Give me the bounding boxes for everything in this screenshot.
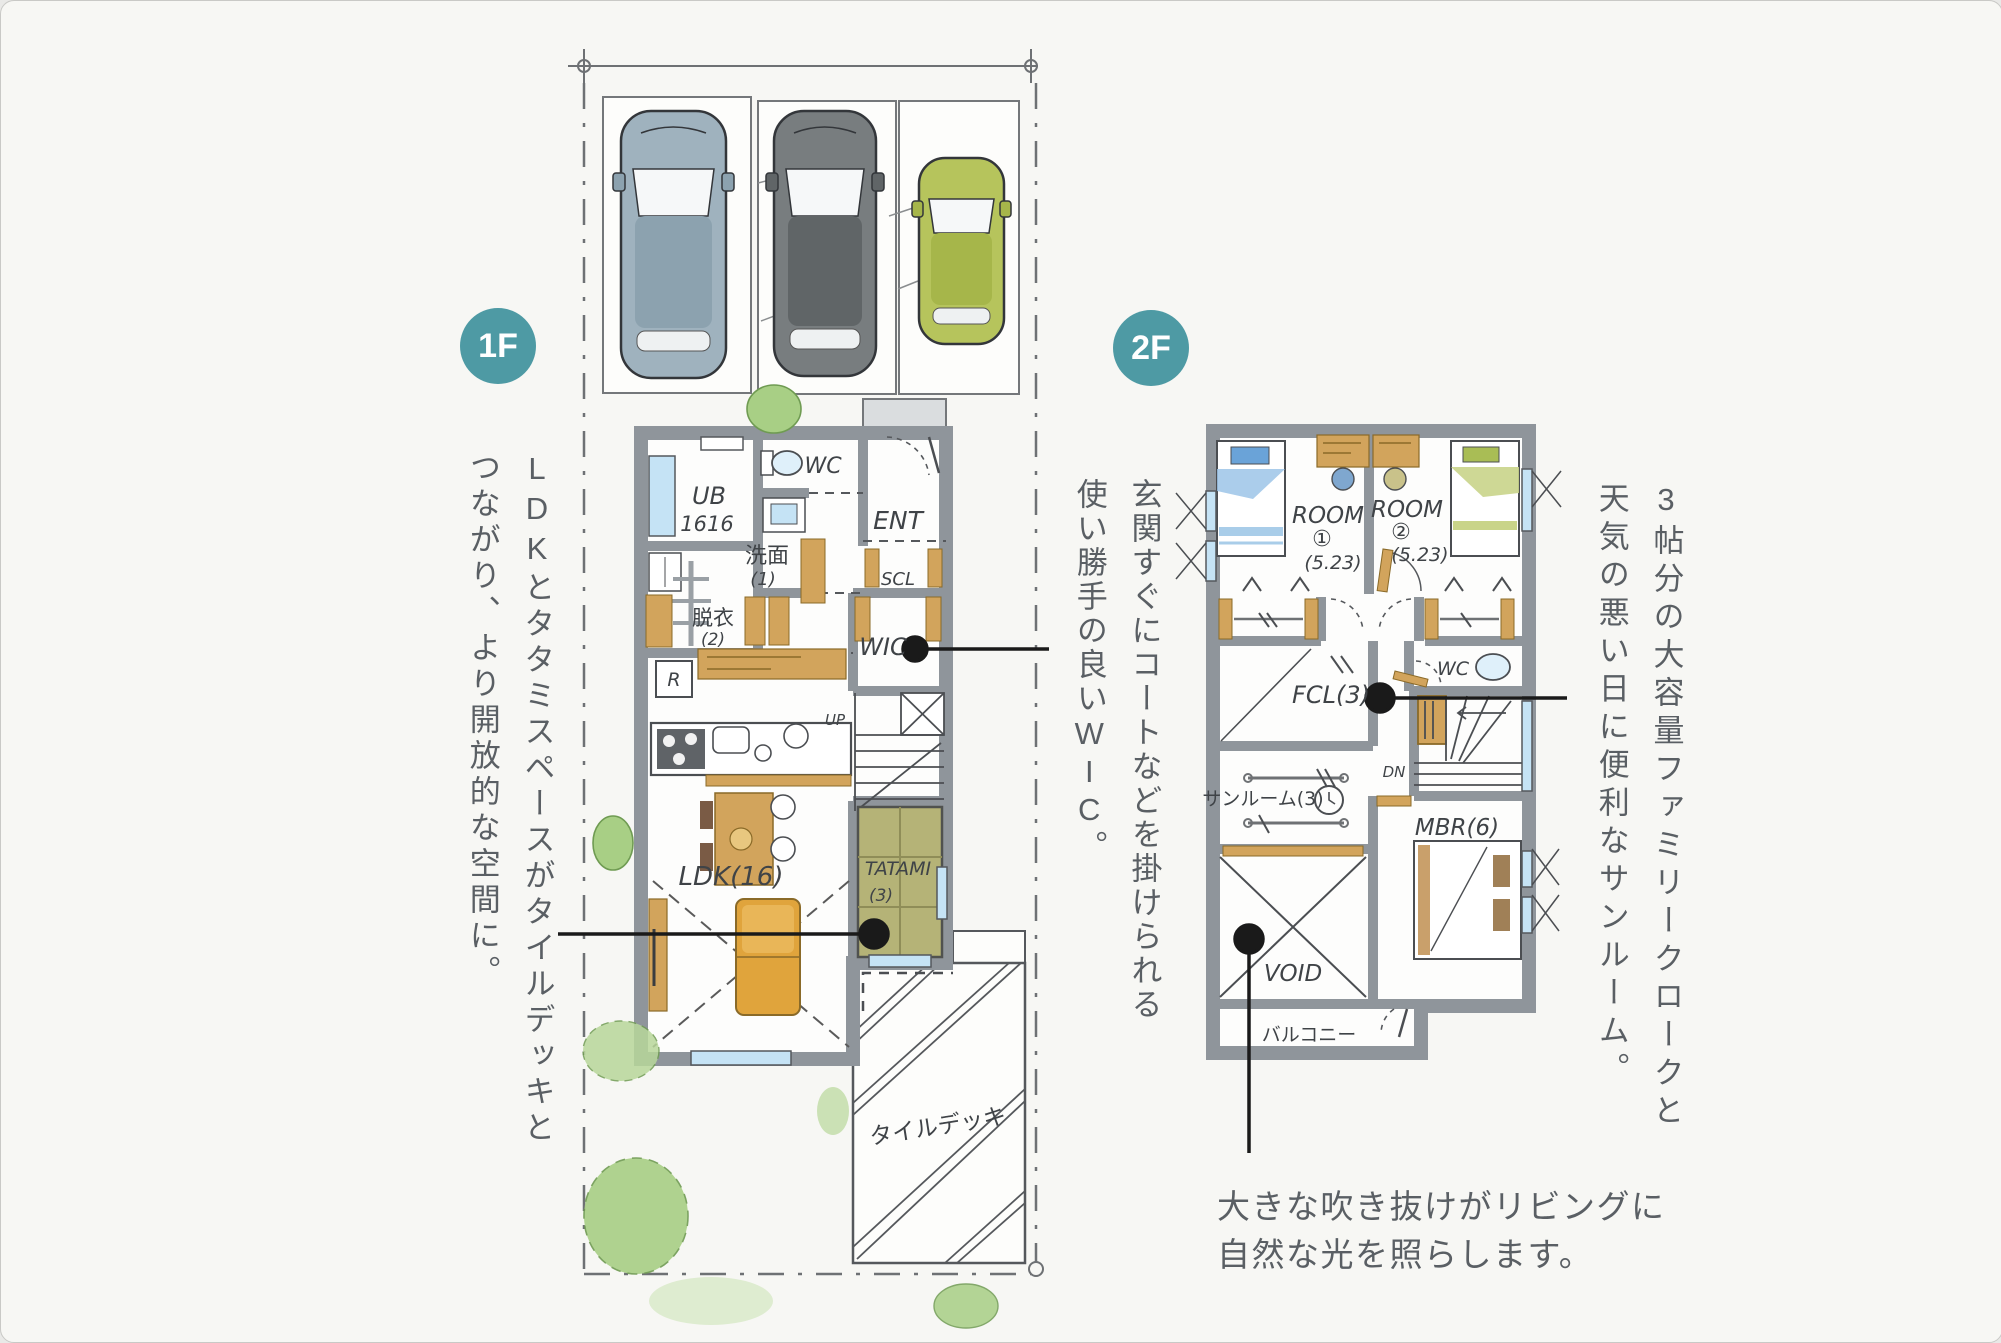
label-up: UP (825, 711, 846, 729)
label-room2-num: ② (1391, 520, 1411, 545)
annotation-middle-line1: 玄関すぐにコートなどを掛けられる (1124, 478, 1163, 1022)
label-fridge: R (667, 669, 680, 691)
label-room2-size: (5.23) (1391, 544, 1448, 566)
label-dn: DN (1383, 763, 1406, 781)
floor-plan-sheet: タイルデッキ (0, 0, 2001, 1343)
label-wic: WIC (859, 633, 907, 661)
label-wc-2f: WC (1437, 658, 1470, 680)
annotation-left: LDKとタタミスペースがタイルデッキと つながり、より開放的な空間に。 (462, 451, 556, 1147)
floor-plan-1f (641, 399, 947, 1065)
annotation-right-line1: 3帖分の大容量ファミリークロークと (1646, 482, 1685, 1132)
label-ldk: LDK(16) (679, 862, 784, 892)
washstand-icon (763, 498, 805, 532)
floor-badge-1f: 1F (460, 308, 536, 384)
annotation-left-line2: つながり、より開放的な空間に。 (462, 451, 501, 1147)
label-ub-size: 1616 (680, 512, 733, 536)
annotation-bottom-line1: 大きな吹き抜けがリビングに (1217, 1183, 1666, 1231)
label-room1-num: ① (1312, 527, 1332, 552)
annotation-right: 3帖分の大容量ファミリークロークと 天気の悪い日に便利なサンルーム。 (1591, 482, 1685, 1132)
callout-dot-tatami (860, 920, 888, 948)
tile-deck: タイルデッキ (853, 931, 1025, 1263)
annotation-bottom-line2: 自然な光を照らします。 (1217, 1231, 1666, 1279)
car-green (912, 158, 1011, 344)
plan-drawing: タイルデッキ (1, 1, 2001, 1342)
sofa (736, 899, 800, 1015)
label-tatami: TATAMI (865, 858, 932, 880)
car-gray (613, 111, 734, 378)
bed-room1 (1217, 441, 1285, 556)
label-senmen: 洗面 (745, 544, 789, 569)
label-tatami-num: (3) (869, 886, 893, 906)
sink-icon (713, 727, 749, 753)
label-senmen-num: (1) (750, 569, 776, 590)
annotation-middle: 玄関すぐにコートなどを掛けられる 使い勝手の良いWIC。 (1069, 478, 1163, 1022)
annotation-left-line1: LDKとタタミスペースがタイルデッキと (517, 451, 556, 1147)
label-void: VOID (1264, 961, 1322, 987)
label-wc-1f: WC (804, 454, 842, 479)
floor-plan-2f (1176, 431, 1561, 1053)
bed-mbr (1414, 841, 1521, 959)
label-mbr: MBR(6) (1415, 815, 1499, 841)
label-ub: UB (692, 482, 726, 510)
label-sunroom: サンルーム(3) (1202, 788, 1323, 810)
floor-badge-2f: 2F (1113, 310, 1189, 386)
label-datsui-num: (2) (701, 630, 725, 650)
bath-counter (701, 437, 743, 450)
annotation-middle-line2: 使い勝手の良いWIC。 (1069, 478, 1108, 1022)
label-datsui: 脱衣 (692, 606, 734, 630)
label-fcl: FCL(3) (1292, 681, 1370, 709)
toilet-icon-1f (761, 451, 802, 475)
label-room1: ROOM (1292, 503, 1364, 529)
label-balcony: バルコニー (1262, 1024, 1357, 1046)
car-black (766, 111, 884, 376)
counter-edge (706, 775, 851, 786)
annotation-bottom: 大きな吹き抜けがリビングに 自然な光を照らします。 (1217, 1183, 1666, 1279)
callout-dot-void (1235, 925, 1263, 953)
cupboard (698, 649, 846, 679)
tv-board (649, 899, 667, 1011)
label-scl: SCL (881, 569, 915, 590)
label-ent: ENT (873, 506, 924, 535)
annotation-right-line2: 天気の悪い日に便利なサンルーム。 (1591, 482, 1630, 1132)
bed-room2 (1451, 441, 1519, 556)
bath-window (649, 456, 675, 536)
label-room1-size: (5.23) (1304, 552, 1361, 574)
callout-dot-fcl (1366, 684, 1394, 712)
toilet-icon-2f (1476, 654, 1510, 680)
